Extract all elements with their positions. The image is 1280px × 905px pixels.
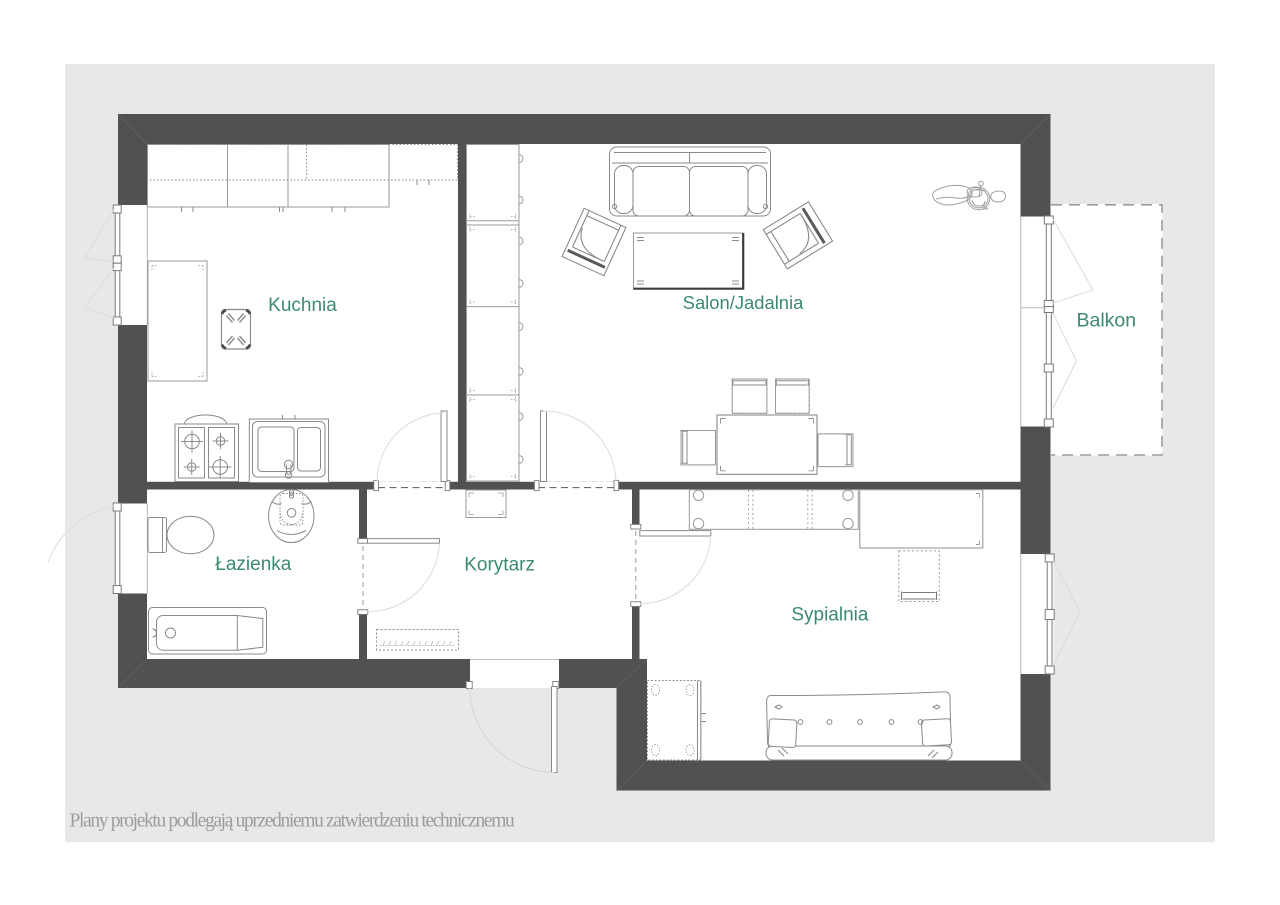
svg-text:Korytarz: Korytarz [464, 554, 535, 575]
svg-text:Balkon: Balkon [1076, 309, 1136, 331]
svg-text:Plany projektu podlegają uprze: Plany projektu podlegają uprzedniemu zat… [70, 811, 516, 832]
svg-text:Kuchnia: Kuchnia [268, 295, 337, 316]
svg-text:Sypialnia: Sypialnia [791, 605, 869, 626]
svg-text:Salon/Jadalnia: Salon/Jadalnia [683, 292, 804, 313]
svg-text:Łazienka: Łazienka [215, 554, 291, 575]
